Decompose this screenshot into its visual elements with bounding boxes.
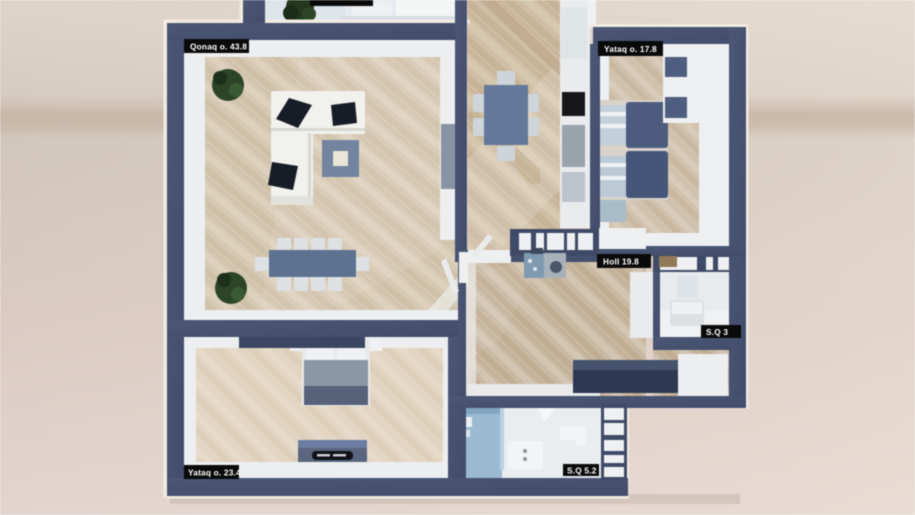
svg-text:S.Q 5.2: S.Q 5.2 [567, 466, 597, 476]
svg-text:S.Q 3: S.Q 3 [706, 327, 728, 337]
svg-text:Holl 19.8: Holl 19.8 [603, 257, 639, 267]
svg-text:Qonaq o. 43.8: Qonaq o. 43.8 [190, 42, 247, 52]
svg-text:Yataq o. 17.8: Yataq o. 17.8 [604, 44, 657, 54]
svg-text:Yataq o. 23.4: Yataq o. 23.4 [188, 468, 241, 478]
